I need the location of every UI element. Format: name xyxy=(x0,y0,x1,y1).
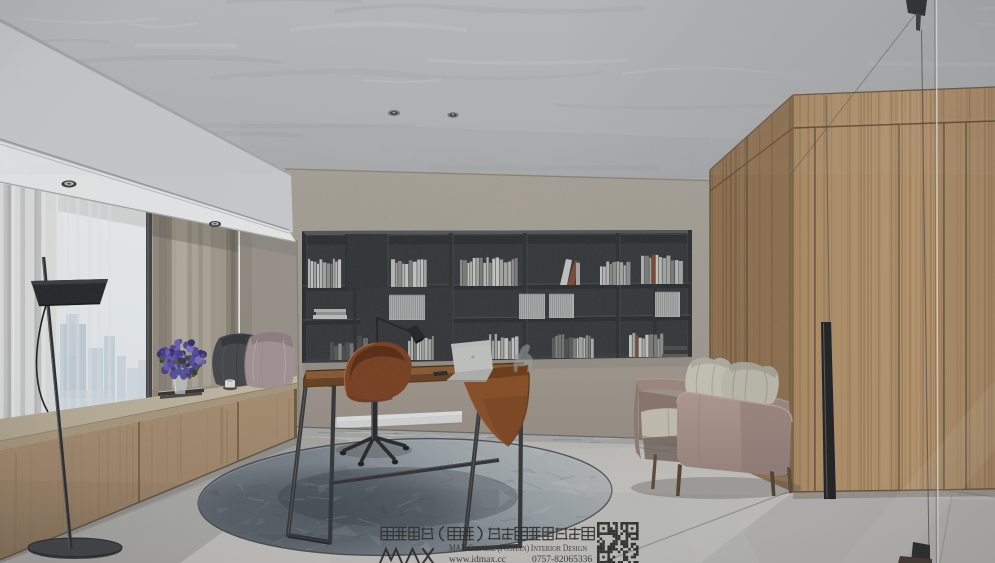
svg-text:www.idmax.cc: www.idmax.cc xyxy=(449,555,506,563)
svg-text:MAX CHINESE (FOSHAN) INTERIOR: MAX CHINESE (FOSHAN) INTERIOR DESIGN xyxy=(449,543,587,553)
svg-text:0757-82065336: 0757-82065336 xyxy=(532,555,592,563)
